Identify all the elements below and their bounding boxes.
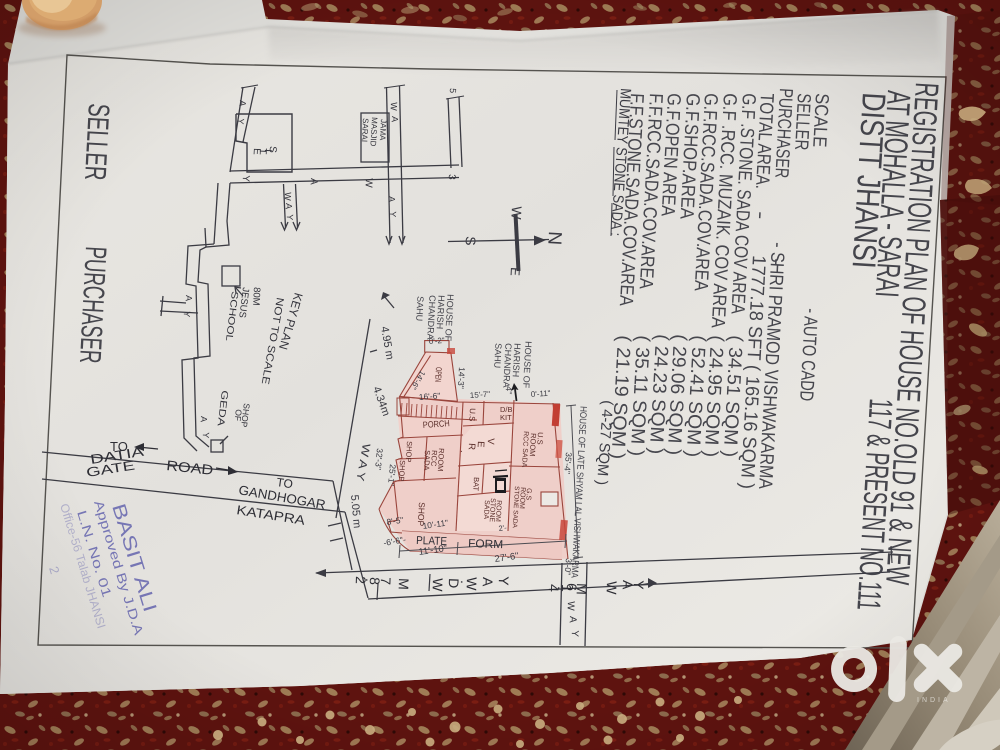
svg-text:INDIA: INDIA: [917, 697, 951, 704]
